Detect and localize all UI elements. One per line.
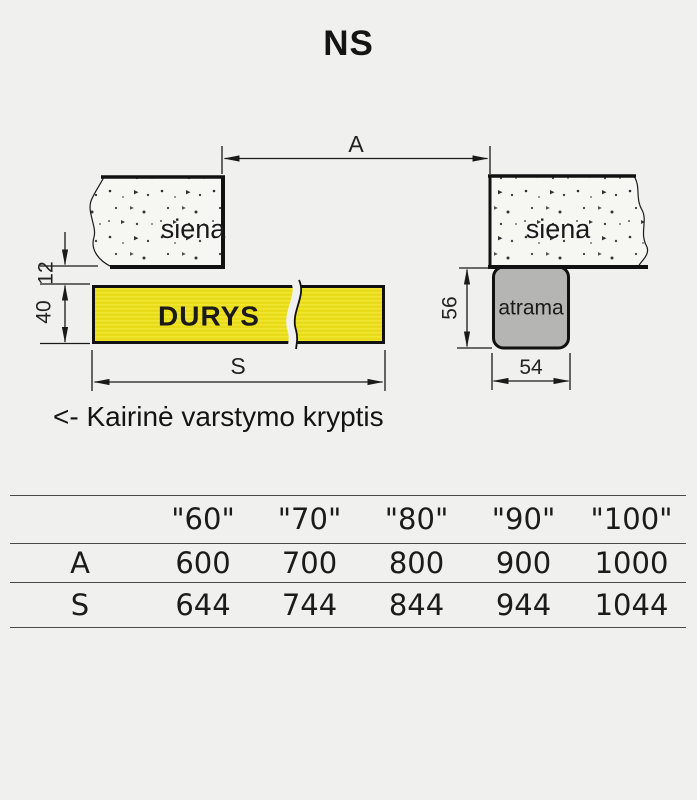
table-header-cell: "90": [470, 505, 577, 534]
wall-right: siena: [488, 175, 648, 269]
table-cell: 700: [256, 549, 363, 578]
table-cell: 1044: [577, 591, 686, 620]
table-cell: 600: [150, 549, 256, 578]
dim-s-label: S: [230, 353, 245, 379]
dim-12-label: 12: [35, 261, 58, 284]
dim-54-label: 54: [519, 356, 543, 379]
opening-direction-note: <- Kairinė varstymo kryptis: [53, 401, 384, 433]
door-section-diagram: siena siena atrama DURYS: [0, 0, 697, 460]
table-cell: 644: [150, 591, 256, 620]
size-table: "60" "70" "80" "90" "100" A 600 700 800 …: [10, 495, 686, 628]
door: DURYS: [94, 280, 384, 349]
table-row: S 644 744 844 944 1044: [10, 583, 686, 628]
door-label: DURYS: [158, 301, 260, 332]
table-cell: 844: [363, 591, 470, 620]
table-header-cell: "80": [363, 505, 470, 534]
table-cell: 944: [470, 591, 577, 620]
table-header-cell: "70": [256, 505, 363, 534]
table-cell: 800: [363, 549, 470, 578]
table-cell: 900: [470, 549, 577, 578]
table-row-label: A: [10, 549, 150, 578]
support-label: atrama: [498, 297, 564, 320]
table-cell: 1000: [577, 549, 686, 578]
table-cell: 744: [256, 591, 363, 620]
wall-left-label: siena: [161, 214, 227, 244]
table-row: A 600 700 800 900 1000: [10, 544, 686, 583]
table-row-label: S: [10, 591, 150, 620]
wall-left: siena: [90, 176, 226, 269]
dim-a-label: A: [348, 131, 364, 157]
dim-56-label: 56: [439, 296, 462, 319]
dim-40-label: 40: [33, 300, 56, 323]
table-header-cell: "100": [577, 505, 686, 534]
wall-right-label: siena: [526, 214, 592, 244]
spec-sheet: { "title": "NS", "diagram": { "wall_left…: [0, 0, 697, 800]
table-header-cell: "60": [150, 505, 256, 534]
table-header-row: "60" "70" "80" "90" "100": [10, 496, 686, 544]
